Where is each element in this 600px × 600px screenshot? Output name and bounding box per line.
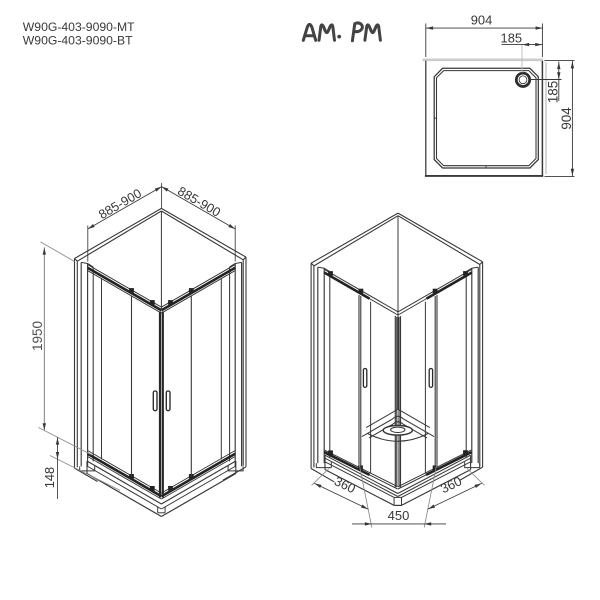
svg-text:185: 185 [501, 31, 523, 46]
svg-text:148: 148 [42, 467, 57, 488]
svg-text:904: 904 [471, 12, 493, 27]
svg-text:1950: 1950 [30, 321, 45, 351]
svg-text:185: 185 [545, 81, 560, 104]
svg-text:450: 450 [388, 508, 410, 523]
svg-text:W90G-403-9090-MT: W90G-403-9090-MT [23, 20, 135, 34]
svg-text:904: 904 [559, 107, 574, 130]
svg-text:W90G-403-9090-BT: W90G-403-9090-BT [23, 33, 133, 47]
